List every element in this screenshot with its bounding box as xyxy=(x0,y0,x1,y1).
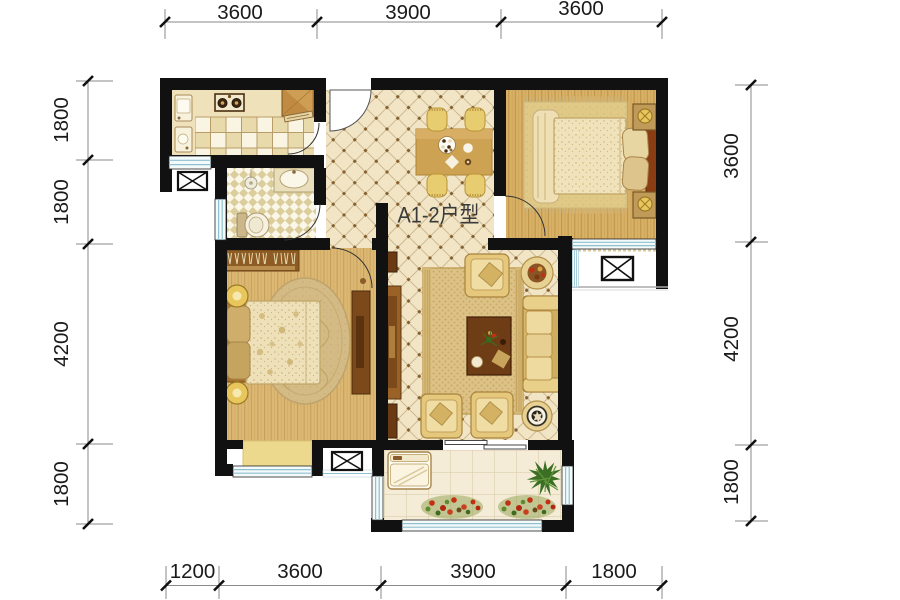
svg-text:A1-2户型: A1-2户型 xyxy=(398,203,480,228)
svg-text:1800: 1800 xyxy=(591,560,637,583)
svg-text:1800: 1800 xyxy=(720,459,743,505)
svg-text:1200: 1200 xyxy=(170,560,216,583)
svg-text:3600: 3600 xyxy=(558,0,604,20)
svg-text:3900: 3900 xyxy=(450,560,496,583)
svg-text:1800: 1800 xyxy=(50,179,73,225)
svg-text:3600: 3600 xyxy=(720,133,743,179)
svg-text:3600: 3600 xyxy=(217,1,263,24)
svg-text:4200: 4200 xyxy=(50,321,73,367)
svg-text:1800: 1800 xyxy=(50,97,73,143)
svg-text:3600: 3600 xyxy=(277,560,323,583)
svg-text:3900: 3900 xyxy=(385,1,431,24)
svg-text:4200: 4200 xyxy=(720,316,743,362)
svg-text:1800: 1800 xyxy=(50,461,73,507)
